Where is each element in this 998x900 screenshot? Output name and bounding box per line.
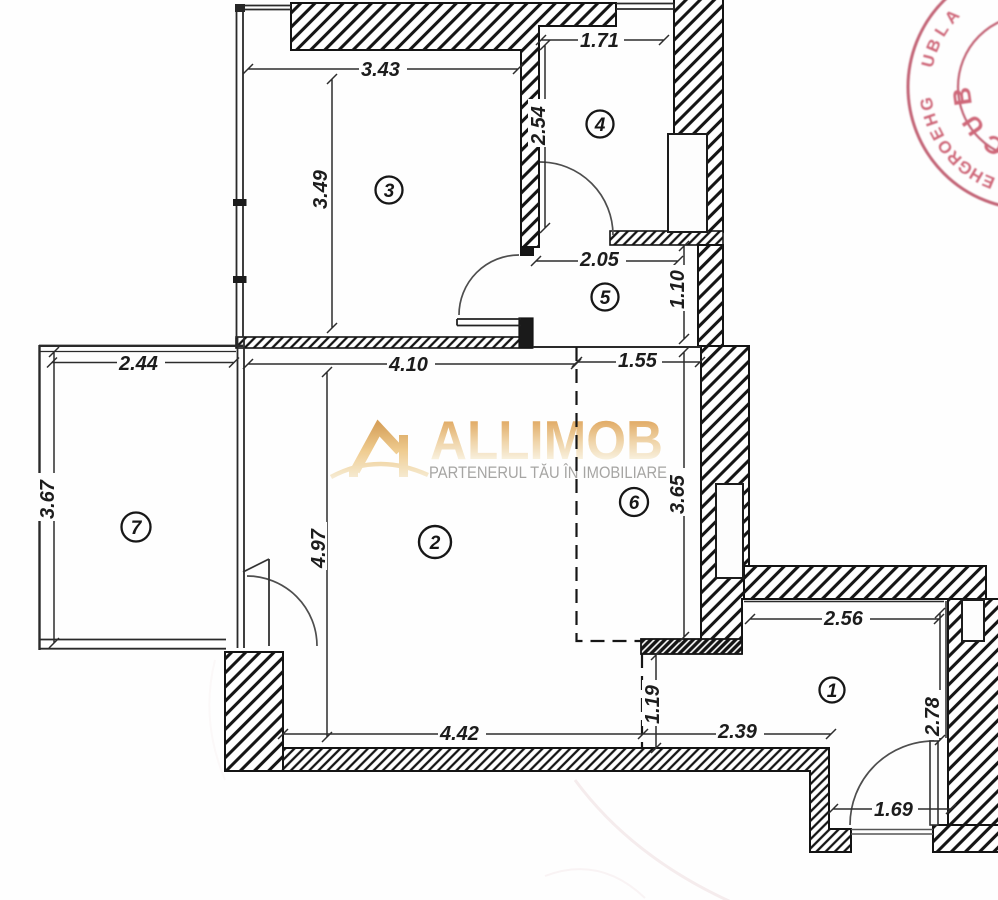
- svg-text:6: 6: [629, 493, 640, 514]
- svg-text:PARTENERUL TĂU ÎN IMOBILIARE: PARTENERUL TĂU ÎN IMOBILIARE: [429, 463, 667, 482]
- svg-text:2.56: 2.56: [823, 608, 864, 630]
- svg-text:4.10: 4.10: [388, 354, 428, 376]
- svg-text:2.78: 2.78: [922, 696, 944, 737]
- svg-text:2.54: 2.54: [528, 106, 550, 146]
- svg-text:1.19: 1.19: [642, 684, 664, 724]
- svg-text:ALLIMOB: ALLIMOB: [430, 409, 663, 471]
- svg-text:5: 5: [600, 288, 611, 309]
- svg-text:7: 7: [131, 518, 143, 539]
- svg-text:1.10: 1.10: [667, 270, 689, 309]
- svg-text:1.71: 1.71: [580, 30, 619, 52]
- svg-text:3.65: 3.65: [667, 474, 689, 514]
- svg-text:3.49: 3.49: [310, 169, 332, 209]
- svg-text:1.55: 1.55: [618, 350, 658, 372]
- svg-text:2: 2: [429, 533, 441, 554]
- svg-text:B: B: [948, 86, 978, 108]
- svg-text:3: 3: [384, 181, 395, 202]
- svg-text:2.44: 2.44: [118, 353, 158, 375]
- svg-text:3.67: 3.67: [37, 479, 59, 519]
- svg-text:4.97: 4.97: [308, 528, 330, 569]
- svg-text:4.42: 4.42: [439, 723, 479, 745]
- svg-text:2.39: 2.39: [717, 721, 758, 743]
- svg-text:4: 4: [594, 115, 606, 136]
- svg-text:1.69: 1.69: [874, 799, 914, 821]
- svg-text:1: 1: [827, 681, 838, 702]
- svg-text:3.43: 3.43: [361, 59, 400, 81]
- svg-text:2.05: 2.05: [579, 249, 620, 271]
